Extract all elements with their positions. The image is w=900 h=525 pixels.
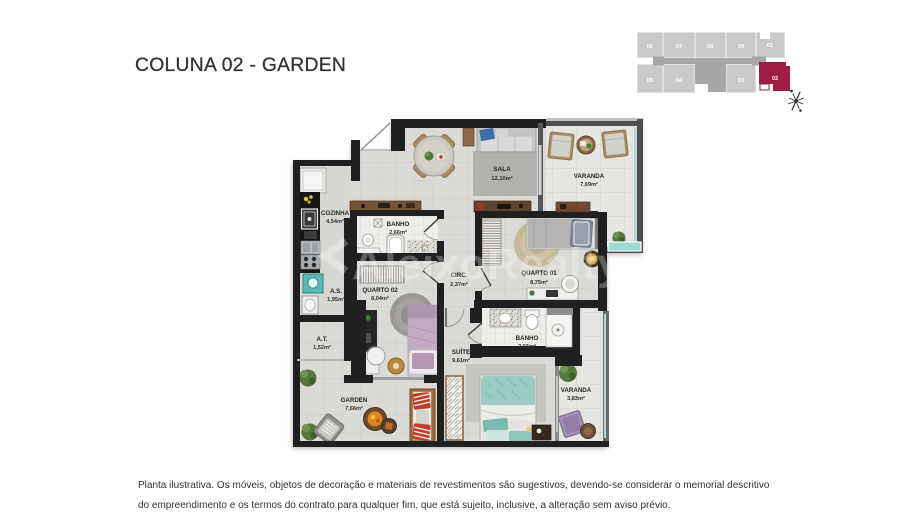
svg-text:2,66m²: 2,66m² xyxy=(389,229,407,236)
svg-text:VARANDA: VARANDA xyxy=(561,387,592,394)
svg-text:8,04m²: 8,04m² xyxy=(371,295,389,302)
svg-text:2,66m²: 2,66m² xyxy=(518,343,536,350)
svg-text:7,66m²: 7,66m² xyxy=(345,405,363,412)
svg-text:COZINHA: COZINHA xyxy=(321,210,350,217)
svg-text:Planta ilustrativa. Os móveis,: Planta ilustrativa. Os móveis, objetos d… xyxy=(138,480,770,491)
svg-text:A.S.: A.S. xyxy=(330,288,342,295)
svg-text:05: 05 xyxy=(647,78,653,84)
svg-text:COLUNA 02 - GARDEN: COLUNA 02 - GARDEN xyxy=(135,55,346,76)
svg-text:BANHO: BANHO xyxy=(387,221,410,228)
svg-text:SALA: SALA xyxy=(493,166,511,173)
svg-text:do empreendimento e os termos: do empreendimento e os termos do contrat… xyxy=(138,500,671,511)
svg-text:SUÍTE: SUÍTE xyxy=(452,348,470,356)
svg-text:9,61m²: 9,61m² xyxy=(452,357,470,364)
svg-text:06: 06 xyxy=(647,44,653,50)
svg-text:1,52m²: 1,52m² xyxy=(313,344,331,351)
svg-text:09: 09 xyxy=(738,44,744,50)
svg-text:BANHO: BANHO xyxy=(516,335,539,342)
svg-text:12,10m²: 12,10m² xyxy=(491,175,512,182)
svg-text:GARDEN: GARDEN xyxy=(341,397,368,404)
svg-text:03: 03 xyxy=(738,78,744,84)
svg-text:3,83m²: 3,83m² xyxy=(567,395,585,402)
svg-text:AleixoRealty: AleixoRealty xyxy=(352,240,622,289)
svg-text:A.T.: A.T. xyxy=(317,336,328,343)
svg-text:4,54m²: 4,54m² xyxy=(326,218,344,225)
svg-text:04: 04 xyxy=(676,78,683,84)
svg-text:08: 08 xyxy=(707,44,713,50)
svg-text:07: 07 xyxy=(676,44,682,50)
svg-text:1,95m²: 1,95m² xyxy=(327,296,345,303)
svg-text:VARANDA: VARANDA xyxy=(574,173,605,180)
svg-text:02: 02 xyxy=(772,76,778,82)
svg-text:7,69m²: 7,69m² xyxy=(580,181,598,188)
svg-text:01: 01 xyxy=(767,43,773,49)
